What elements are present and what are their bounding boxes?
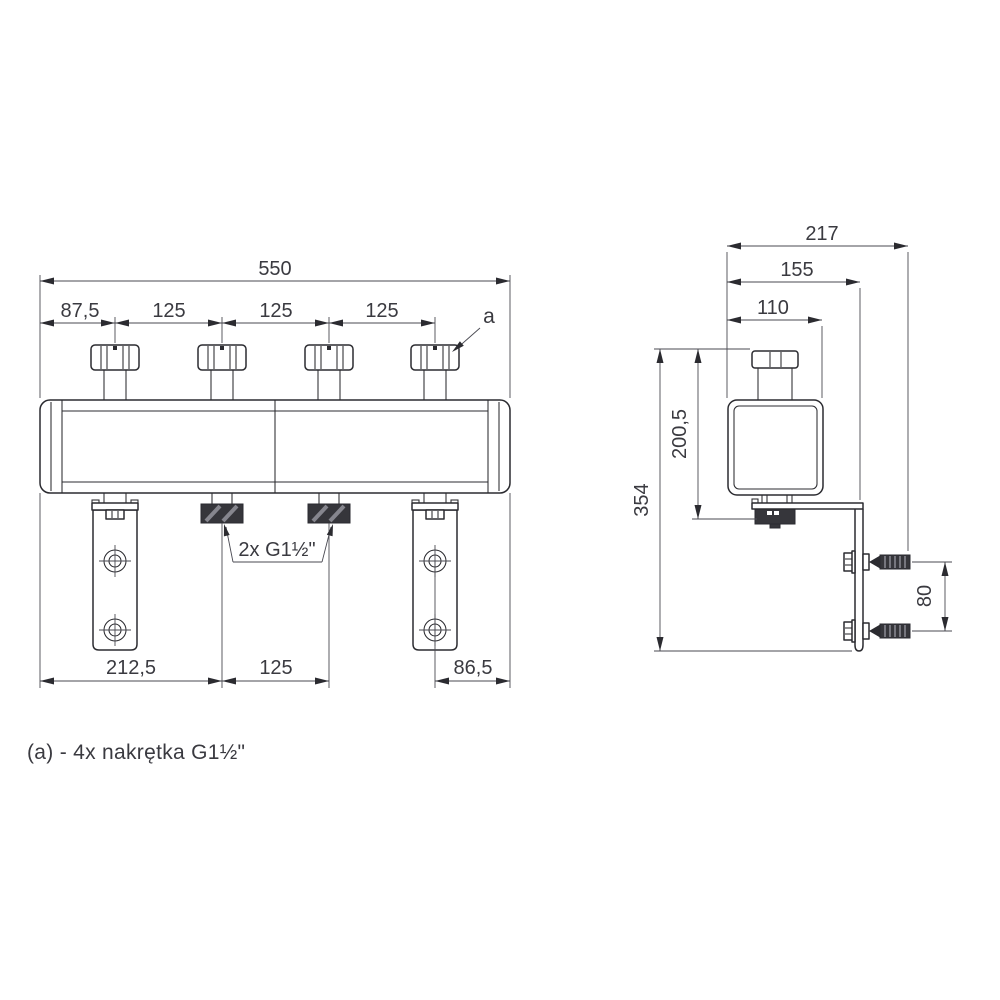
side-view: 217 155 110 354: [631, 223, 952, 651]
dim-550-label: 550: [258, 258, 291, 280]
dimension-side-217: 217: [727, 223, 908, 551]
manifold-body: [40, 400, 510, 493]
dim-110-label: 110: [757, 297, 789, 319]
dimension-front-port-spacing: 87,5 125 125 125: [40, 300, 435, 327]
nut-4: [411, 317, 459, 400]
side-top-nut: [752, 351, 798, 400]
dimension-side-110: 110: [727, 297, 822, 398]
callout-ports: 2x G1½": [224, 524, 333, 562]
dim-87-5-label: 87,5: [61, 300, 100, 322]
dim-125-label-1: 125: [152, 300, 185, 322]
wall-anchor-top: [844, 551, 910, 573]
mounting-bracket-left: [92, 493, 138, 650]
dim-354-label: 354: [631, 483, 653, 516]
callout-a-label: a: [483, 305, 495, 328]
front-view: 550 87,5 125 125 125 a: [40, 258, 510, 688]
top-nuts: [91, 317, 459, 400]
nut-1: [91, 317, 139, 400]
dim-217-label: 217: [805, 223, 838, 245]
side-bottom-port: [755, 495, 795, 528]
dim-212-5-label: 212,5: [106, 657, 156, 679]
port-right: [308, 493, 350, 688]
dimension-side-155: 155: [727, 259, 860, 500]
port-left: [201, 493, 243, 688]
nut-2: [198, 317, 246, 400]
dim-155-label: 155: [780, 259, 813, 281]
callout-a: a: [452, 305, 495, 352]
dim-86-5-label: 86,5: [454, 657, 493, 679]
technical-drawing-page: 550 87,5 125 125 125 a: [0, 0, 1000, 1000]
callout-ports-label: 2x G1½": [238, 539, 315, 561]
dimension-side-354: 354: [631, 349, 852, 651]
dim-125-bottom-label: 125: [259, 657, 292, 679]
nut-3: [305, 317, 353, 400]
dimension-front-total-width: 550: [40, 258, 510, 398]
mounting-bracket-right: [412, 493, 458, 688]
manifold-drawing: 550 87,5 125 125 125 a: [0, 0, 1000, 1000]
footnote-nut-spec: (a) - 4x nakrętka G1½": [27, 741, 245, 764]
wall-anchor-bottom: [844, 620, 910, 642]
side-body: [728, 400, 823, 495]
dim-80-label: 80: [914, 585, 936, 607]
dimension-side-200-5: 200,5: [669, 349, 757, 519]
dimension-side-80: 80: [912, 562, 952, 631]
dim-125-label-3: 125: [365, 300, 398, 322]
dim-125-label-2: 125: [259, 300, 292, 322]
dim-200-5-label: 200,5: [669, 409, 691, 459]
